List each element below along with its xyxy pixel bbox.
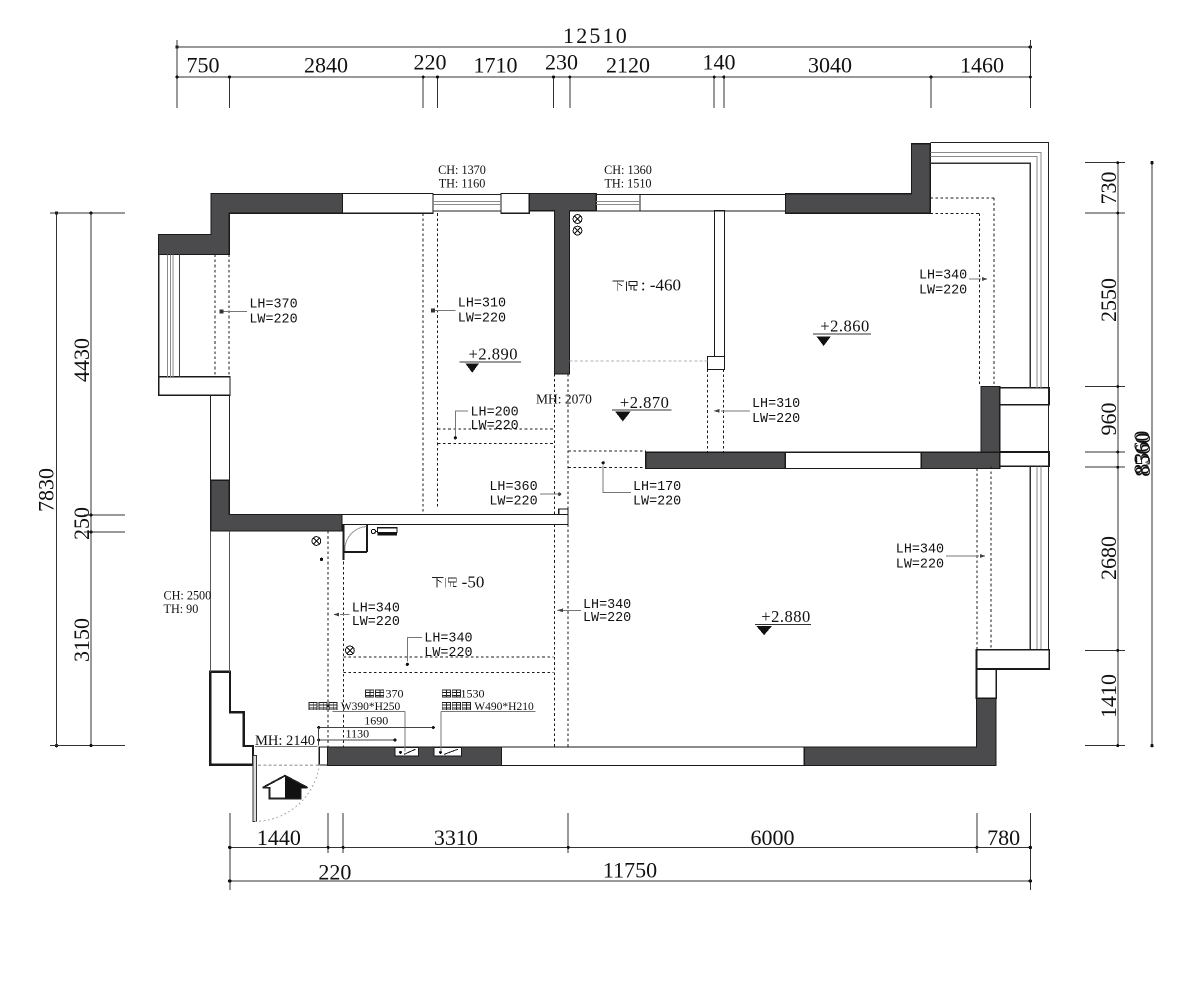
svg-text:1440: 1440 — [257, 825, 301, 850]
svg-text:250: 250 — [69, 507, 94, 540]
svg-text:LH=340: LH=340 — [424, 632, 472, 647]
svg-text:1530: 1530 — [461, 687, 485, 701]
svg-text:7830: 7830 — [34, 468, 59, 512]
svg-text:: -460: : -460 — [641, 276, 681, 295]
svg-text:LW=220: LW=220 — [249, 313, 297, 328]
svg-text:3040: 3040 — [808, 53, 852, 78]
svg-text:LW=220: LW=220 — [896, 558, 944, 573]
svg-text:LW=220: LW=220 — [489, 495, 537, 510]
svg-text:TH: 90: TH: 90 — [164, 602, 199, 616]
svg-text:1710: 1710 — [474, 53, 518, 78]
svg-text:CH: 1360: CH: 1360 — [604, 163, 652, 177]
svg-text:LH=340: LH=340 — [352, 601, 400, 616]
svg-text:LW=220: LW=220 — [752, 412, 800, 427]
svg-text:750: 750 — [187, 53, 220, 78]
svg-text:8560: 8560 — [1130, 433, 1155, 477]
svg-text:+2.890: +2.890 — [469, 345, 518, 364]
svg-text:4430: 4430 — [69, 338, 94, 382]
svg-text:LH=340: LH=340 — [896, 543, 944, 558]
svg-text:+2.880: +2.880 — [761, 607, 810, 626]
svg-text:780: 780 — [987, 825, 1020, 850]
svg-text:LW=220: LW=220 — [424, 646, 472, 661]
svg-text:220: 220 — [414, 50, 447, 75]
svg-text:CH: 2500: CH: 2500 — [164, 589, 212, 603]
svg-text:LW=220: LW=220 — [471, 419, 519, 434]
svg-text:2680: 2680 — [1096, 536, 1121, 580]
svg-text:-50: -50 — [462, 573, 485, 592]
svg-text:LW=220: LW=220 — [919, 283, 967, 298]
svg-text:11750: 11750 — [603, 858, 657, 883]
svg-text:TH: 1160: TH: 1160 — [439, 177, 486, 191]
svg-text:CH: 1370: CH: 1370 — [438, 163, 486, 177]
svg-text:2840: 2840 — [304, 53, 348, 78]
svg-text:370: 370 — [386, 687, 404, 701]
svg-text:3150: 3150 — [69, 618, 94, 662]
svg-text:1130: 1130 — [346, 726, 370, 740]
svg-text:1410: 1410 — [1096, 674, 1121, 718]
svg-text:TH: 1510: TH: 1510 — [604, 177, 651, 191]
svg-text:730: 730 — [1096, 172, 1121, 205]
svg-text:2120: 2120 — [606, 53, 650, 78]
svg-text:1460: 1460 — [960, 53, 1004, 78]
svg-text:12510: 12510 — [563, 23, 629, 48]
svg-text:LH=170: LH=170 — [633, 480, 681, 495]
svg-text:230: 230 — [545, 50, 578, 75]
svg-text:LH=360: LH=360 — [489, 480, 537, 495]
svg-text:3310: 3310 — [434, 825, 478, 850]
svg-text:140: 140 — [703, 50, 736, 75]
svg-text:LH=310: LH=310 — [752, 397, 800, 412]
svg-text:LH=340: LH=340 — [919, 268, 967, 283]
svg-text:+2.870: +2.870 — [620, 393, 669, 412]
svg-text:LW=220: LW=220 — [458, 312, 506, 327]
svg-text:6000: 6000 — [751, 825, 795, 850]
svg-text:960: 960 — [1096, 403, 1121, 436]
svg-text:LH=310: LH=310 — [458, 297, 506, 312]
svg-text:MH: 2070: MH: 2070 — [536, 391, 592, 406]
svg-text:LW=220: LW=220 — [352, 615, 400, 630]
svg-text:2550: 2550 — [1096, 278, 1121, 322]
svg-text:LW=220: LW=220 — [633, 494, 681, 509]
svg-text:LW=220: LW=220 — [583, 611, 631, 626]
svg-text:LH=370: LH=370 — [249, 298, 297, 313]
svg-text:+2.860: +2.860 — [820, 317, 869, 336]
